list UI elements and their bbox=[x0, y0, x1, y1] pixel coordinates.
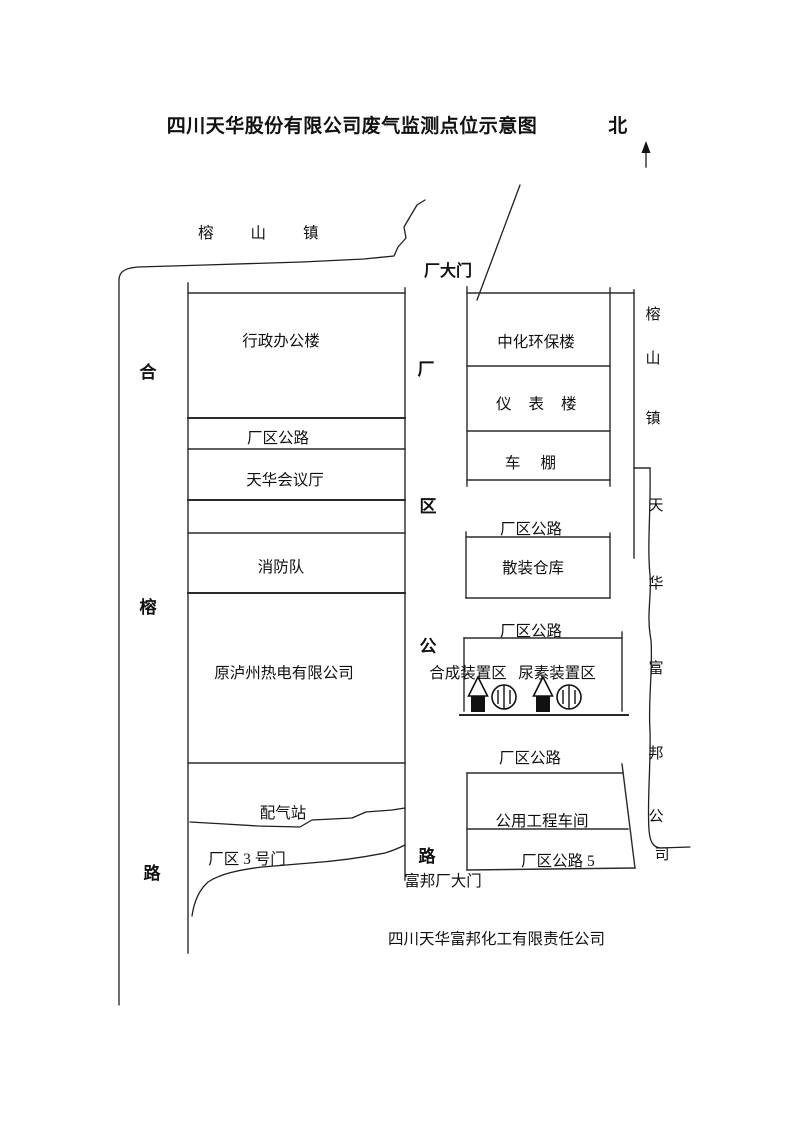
left-road-char-3: 路 bbox=[144, 863, 162, 883]
left-road-char-1: 合 bbox=[140, 362, 158, 382]
town-label-top: 榕山镇 bbox=[198, 224, 356, 242]
fubang-company-char-1: 天 bbox=[648, 498, 663, 514]
town-right-char-3: 镇 bbox=[645, 410, 660, 427]
chimney-stack-icon bbox=[534, 677, 553, 712]
footer-company-label: 四川天华富邦化工有限责任公司 bbox=[388, 930, 605, 948]
fire-brigade-label: 消防队 bbox=[258, 558, 305, 576]
factory-road-char-2: 区 bbox=[420, 497, 437, 516]
carport-label: 车棚 bbox=[505, 454, 576, 472]
fubang-company-char-4: 邦 bbox=[648, 745, 663, 762]
instrument-building-label: 仪表楼 bbox=[496, 395, 594, 413]
chimney-stack-icon bbox=[469, 677, 488, 712]
factory-road-char-1: 厂 bbox=[418, 360, 435, 379]
main-gate-label: 厂大门 bbox=[424, 261, 472, 280]
bulk-warehouse-label: 散装仓库 bbox=[502, 559, 564, 577]
admin-building-label: 行政办公楼 bbox=[242, 332, 320, 350]
east-road5-label: 厂区公路 5 bbox=[521, 852, 595, 870]
conference-hall-label: 天华会议厅 bbox=[246, 471, 324, 489]
env-building-label: 中化环保楼 bbox=[497, 333, 575, 351]
factory-road-char-3: 公 bbox=[420, 637, 437, 656]
utility-workshop-label: 公用工程车间 bbox=[495, 812, 588, 830]
left-road-char-2: 榕 bbox=[140, 597, 158, 617]
north-arrow-icon bbox=[642, 141, 651, 167]
site-plan-diagram: 四川天华股份有限公司废气监测点位示意图 北 榕山镇 厂大门 行政办公楼 厂区公路… bbox=[0, 0, 793, 1121]
town-road-line bbox=[119, 200, 425, 1005]
east-road1-label: 厂区公路 bbox=[500, 520, 563, 538]
town-right-char-2: 山 bbox=[645, 350, 660, 367]
west-road-label: 厂区公路 bbox=[247, 429, 310, 447]
fubang-company-char-3: 富 bbox=[648, 659, 663, 677]
gate-road-diagonal-line bbox=[477, 185, 520, 300]
north-label: 北 bbox=[608, 115, 628, 137]
gas-station-label: 配气站 bbox=[260, 804, 307, 822]
urea-area-label: 尿素装置区 bbox=[518, 664, 596, 682]
town-right-char-1: 榕 bbox=[645, 306, 660, 323]
storage-tank-icon bbox=[557, 685, 581, 709]
fubang-gate-label: 富邦厂大门 bbox=[404, 872, 482, 890]
factory-road-char-4: 路 bbox=[419, 846, 437, 866]
fubang-company-char-6: 司 bbox=[654, 847, 669, 863]
diagram-page: 四川天华股份有限公司废气监测点位示意图 北 榕山镇 厂大门 行政办公楼 厂区公路… bbox=[0, 0, 793, 1121]
gate3-label: 厂区 3 号门 bbox=[208, 850, 286, 868]
power-company-label: 原泸州热电有限公司 bbox=[214, 664, 354, 682]
east-boundary-lines bbox=[634, 290, 690, 848]
synthesis-area-label: 合成装置区 bbox=[429, 664, 507, 682]
fubang-company-char-2: 华 bbox=[648, 575, 663, 592]
east-road3-label: 厂区公路 bbox=[499, 749, 562, 767]
storage-tank-icon bbox=[492, 685, 516, 709]
fubang-company-char-5: 公 bbox=[648, 809, 663, 825]
page-title: 四川天华股份有限公司废气监测点位示意图 bbox=[167, 114, 538, 137]
